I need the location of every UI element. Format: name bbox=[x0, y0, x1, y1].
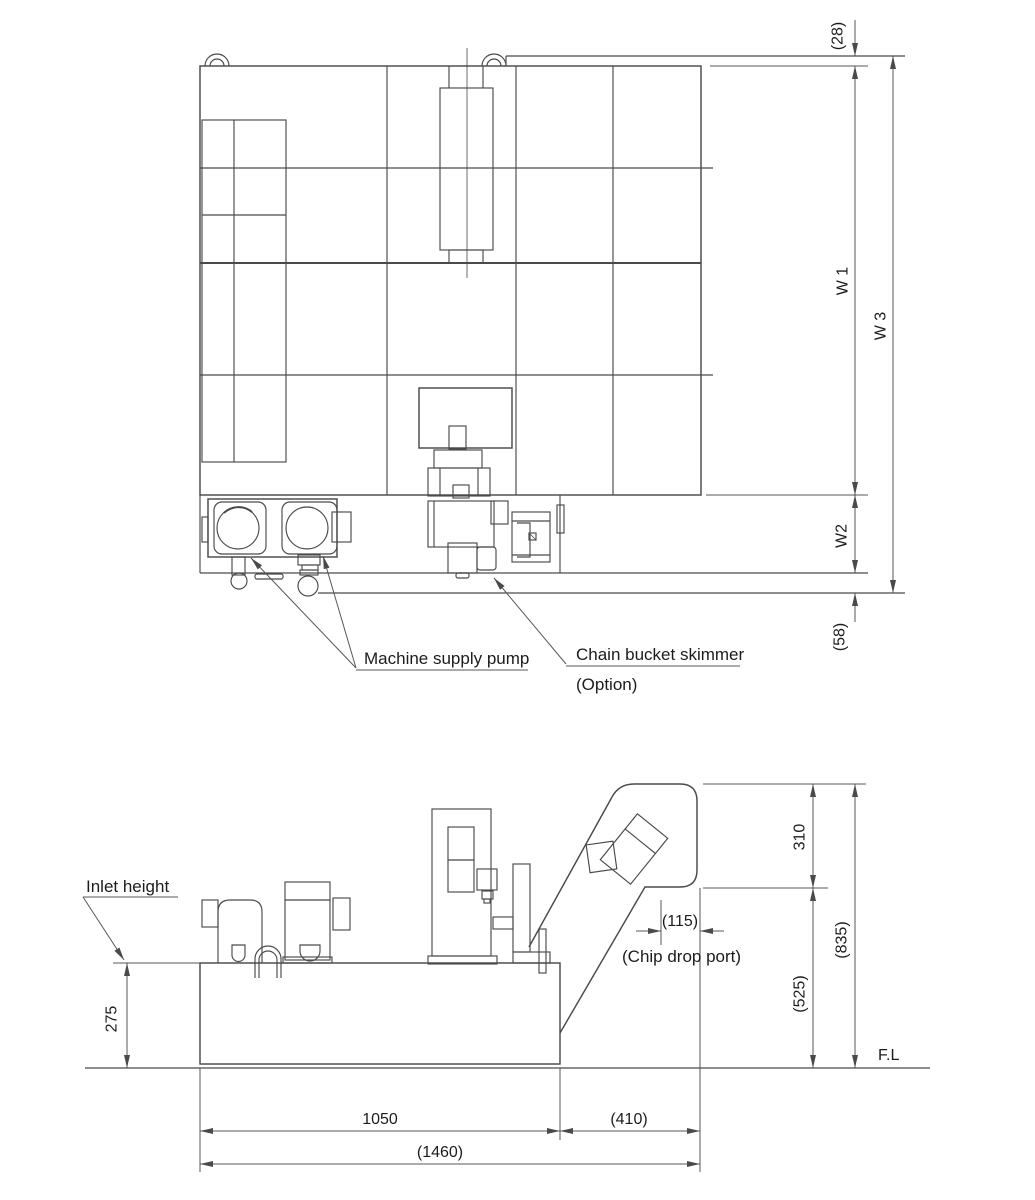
engineering-drawing: (28) W 1 W2 (58) W 3 Machine supply pump… bbox=[0, 0, 1035, 1200]
engineering-drawing-page: (28) W 1 W2 (58) W 3 Machine supply pump… bbox=[0, 0, 1035, 1200]
dim-835-label: (835) bbox=[834, 921, 851, 958]
dim-w3-label: W 3 bbox=[873, 312, 890, 341]
dim-w1-label: W 1 bbox=[835, 267, 852, 296]
dim-410-label: (410) bbox=[610, 1111, 647, 1128]
dim-28-label: (28) bbox=[830, 22, 847, 50]
chain-bucket-skimmer-plan bbox=[428, 501, 564, 578]
supply-pump-plan bbox=[202, 499, 351, 596]
filter-tower-side bbox=[428, 809, 550, 973]
dim-310-label: 310 bbox=[792, 824, 809, 851]
chip-drop-port-label: (Chip drop port) bbox=[622, 947, 741, 966]
top-view-dimensions: (28) W 1 W2 (58) W 3 bbox=[706, 20, 893, 651]
machine-outline-plan bbox=[200, 66, 701, 495]
machine-supply-pump-label: Machine supply pump bbox=[364, 649, 529, 668]
chip-conveyor-side bbox=[529, 784, 697, 1033]
lifting-eye-icon bbox=[482, 54, 506, 66]
conveyor-motor bbox=[600, 814, 667, 884]
pump-circle bbox=[286, 507, 328, 549]
left-cabinet-plan bbox=[202, 120, 286, 462]
conveyor-gearbox bbox=[586, 841, 617, 872]
dim-1050-label: 1050 bbox=[362, 1111, 398, 1128]
inlet-height-leader bbox=[83, 897, 124, 960]
lifting-eye-icon bbox=[205, 54, 229, 66]
dim-275-label: 275 bbox=[104, 1006, 121, 1033]
top-view bbox=[200, 48, 905, 596]
coolant-tank bbox=[200, 963, 560, 1064]
floor-level-label: F.L bbox=[878, 1047, 899, 1064]
dim-w2-label: W2 bbox=[834, 524, 851, 548]
dim-115-label: (115) bbox=[662, 913, 698, 930]
conveyor-plan bbox=[440, 48, 493, 278]
pump-circle bbox=[217, 507, 259, 549]
dim-58-label: (58) bbox=[832, 623, 849, 651]
inlet-height-label: Inlet height bbox=[86, 877, 169, 896]
dim-525-label: (525) bbox=[792, 975, 809, 1012]
leader-labels: Machine supply pump Chain bucket skimmer… bbox=[251, 556, 745, 694]
chain-bucket-skimmer-label: Chain bucket skimmer bbox=[576, 645, 745, 664]
dim-1460-label: (1460) bbox=[417, 1144, 463, 1161]
skimmer-drive-plan bbox=[419, 388, 512, 498]
skimmer-option-label: (Option) bbox=[576, 675, 637, 694]
conveyor-outline bbox=[529, 784, 697, 1033]
